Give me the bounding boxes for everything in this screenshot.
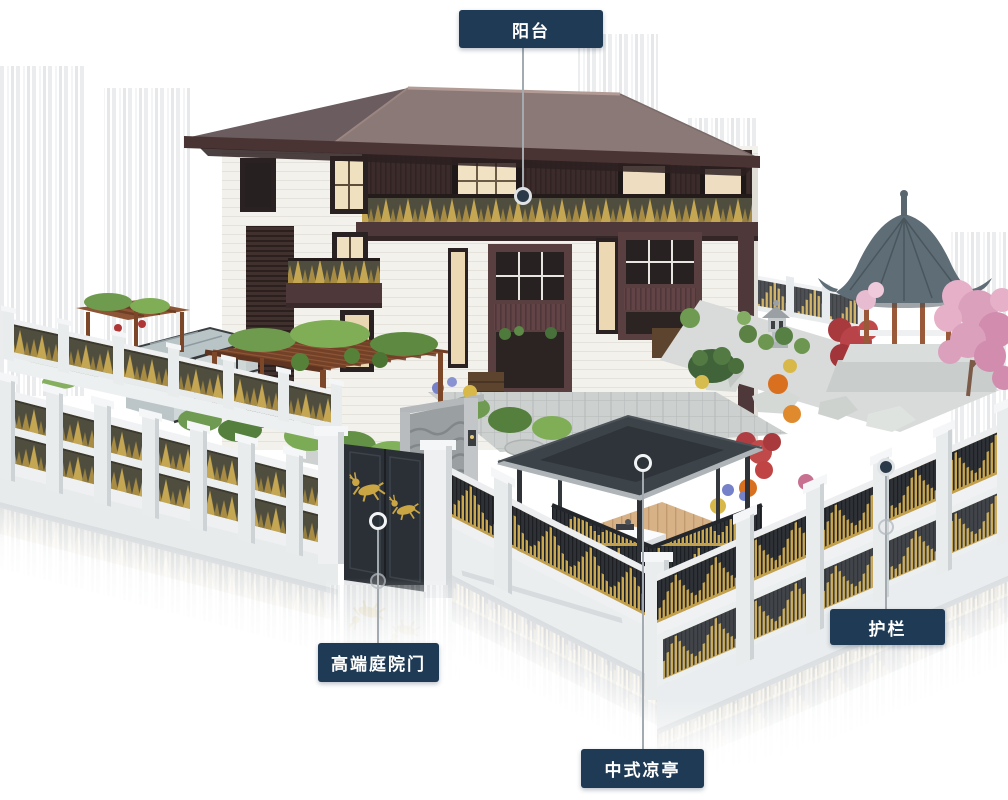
callout-connector-line xyxy=(885,476,887,609)
wing-balcony xyxy=(286,258,382,308)
hotspot-marker-guardrail[interactable] xyxy=(877,458,895,476)
callout-connector-line xyxy=(642,472,644,749)
callout-connector-line xyxy=(522,48,524,188)
callout-ghost-marker xyxy=(878,519,894,535)
villa-scene-illustration xyxy=(0,0,1008,800)
callout-label-gate[interactable]: 高端庭院门 xyxy=(318,643,439,682)
hotspot-marker-gate[interactable] xyxy=(369,512,387,530)
callout-label-guardrail[interactable]: 护栏 xyxy=(830,609,945,645)
hotspot-marker-balcony[interactable] xyxy=(514,187,532,205)
callout-label-balcony[interactable]: 阳台 xyxy=(459,10,603,48)
callout-label-pavilion[interactable]: 中式凉亭 xyxy=(581,749,704,788)
floor-reflection-fade xyxy=(0,700,1008,800)
callout-ghost-marker xyxy=(370,573,386,589)
hotspot-marker-pavilion[interactable] xyxy=(634,454,652,472)
annotated-villa-render: 阳台 高端庭院门 中式凉亭 护栏 xyxy=(0,0,1008,800)
